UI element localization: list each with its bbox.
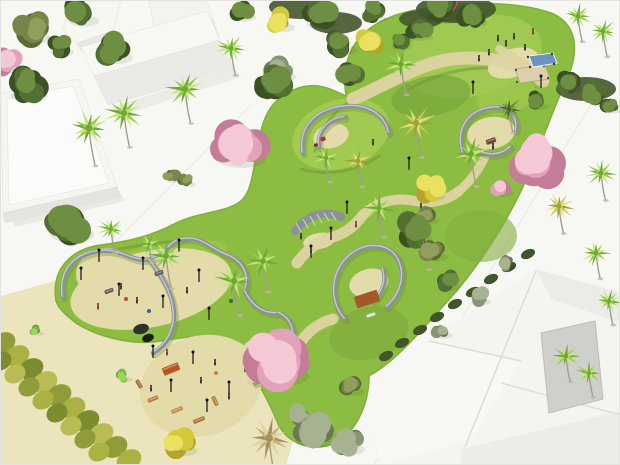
- lamp-base: [206, 410, 208, 412]
- lamp-base: [118, 294, 120, 296]
- palm-trunk-base: [233, 74, 239, 77]
- lamp-base: [310, 256, 312, 258]
- lamp-head: [208, 307, 211, 310]
- person-head: [355, 221, 357, 223]
- tree-foliage: [31, 329, 38, 336]
- person: [136, 299, 138, 304]
- palm-trunk-base: [427, 268, 433, 271]
- person-head: [150, 385, 152, 387]
- palm-crown-center: [147, 242, 151, 246]
- palm-trunk-base: [610, 324, 616, 327]
- tree-foliage: [162, 172, 170, 180]
- person-head: [505, 40, 507, 42]
- tree-foliage: [462, 4, 481, 23]
- palm-trunk-base: [169, 287, 175, 290]
- tree-foliage: [29, 18, 44, 33]
- person-head: [497, 35, 499, 37]
- palm-trunk-base: [403, 94, 409, 97]
- person-head: [166, 349, 168, 351]
- palm-crown-center: [587, 371, 591, 375]
- tree-foliage: [476, 286, 489, 299]
- palm-trunk-base: [598, 277, 604, 280]
- palm-trunk-base: [419, 156, 425, 159]
- palm-trunk-base: [237, 314, 243, 317]
- person: [532, 30, 534, 35]
- pergola-post: [529, 66, 531, 68]
- tree-foliage: [119, 374, 126, 381]
- palm-crown-center: [398, 61, 404, 67]
- palm-crown-center: [556, 203, 561, 208]
- person-head: [228, 393, 230, 395]
- palm-crown-center: [260, 258, 266, 264]
- palm-trunk-base: [510, 132, 516, 135]
- architectural-park-rendering: [0, 0, 620, 465]
- palm-crown-center: [507, 107, 511, 111]
- palm-trunk-base: [474, 185, 480, 188]
- palm-trunk-base: [188, 122, 194, 125]
- person: [300, 235, 302, 240]
- person: [505, 42, 507, 47]
- tree-foliage: [234, 4, 247, 17]
- lamp-base: [98, 260, 100, 262]
- tree-foliage: [57, 35, 71, 49]
- palm-crown-center: [182, 86, 188, 92]
- canopy-post: [547, 77, 549, 79]
- person: [478, 57, 480, 62]
- person: [492, 145, 494, 150]
- palm-trunk-base: [112, 252, 118, 255]
- palm-crown-center: [265, 434, 273, 442]
- palm-trunk-base: [127, 146, 133, 149]
- palm-trunk-base: [603, 199, 609, 202]
- lamp-base: [170, 390, 172, 392]
- palm-crown-center: [413, 120, 419, 126]
- tree-foliage: [528, 94, 542, 108]
- tree-foliage: [438, 326, 447, 335]
- play-equipment: [147, 309, 151, 313]
- lamp-base: [198, 280, 200, 282]
- person-head: [513, 33, 515, 35]
- person: [228, 395, 230, 400]
- person: [372, 141, 374, 146]
- person: [355, 223, 357, 228]
- tree-foliage: [230, 140, 249, 159]
- palm-crown-center: [228, 45, 233, 50]
- lamp-head: [152, 345, 155, 348]
- tree-foliage: [446, 273, 459, 286]
- person: [150, 387, 152, 392]
- pergola-post: [551, 53, 553, 55]
- lawn-berm: [445, 210, 517, 262]
- tree-foliage: [309, 4, 328, 23]
- palm-crown-center: [598, 170, 603, 175]
- lamp-base: [192, 362, 194, 364]
- person-head: [300, 233, 302, 235]
- lamp-base: [208, 318, 210, 320]
- tree-foliage: [344, 384, 353, 393]
- lamp-head: [408, 157, 411, 160]
- lamp-base: [330, 238, 332, 240]
- palm-trunk-base: [381, 236, 387, 239]
- lamp-head: [162, 295, 165, 298]
- palm-trunk-base: [327, 181, 333, 184]
- person: [524, 46, 526, 51]
- lamp-base: [540, 86, 542, 88]
- person-head: [186, 287, 188, 289]
- lamp-head: [178, 239, 181, 242]
- lamp-base: [162, 306, 164, 308]
- person: [488, 51, 490, 56]
- person: [97, 305, 99, 310]
- tree-foliage: [64, 217, 91, 244]
- person: [497, 37, 499, 42]
- lamp-head: [98, 249, 101, 252]
- tree-foliage: [306, 412, 331, 437]
- palm-crown-center: [468, 151, 474, 157]
- lamp-head: [206, 399, 209, 402]
- lamp-base: [472, 92, 474, 94]
- palm-crown-center: [163, 253, 169, 259]
- person-head: [97, 303, 99, 305]
- lamp-head: [170, 379, 173, 382]
- person-head: [420, 203, 422, 205]
- lamp-head: [198, 269, 201, 272]
- person-head: [492, 143, 494, 145]
- lamp-base: [408, 168, 410, 170]
- person: [310, 249, 312, 254]
- palm-crown-center: [121, 110, 127, 116]
- palm-crown-center: [564, 354, 569, 359]
- tree-foliage: [429, 175, 445, 191]
- tree-foliage: [1, 55, 12, 66]
- palm-trunk-base: [265, 291, 271, 294]
- tree-foliage: [185, 174, 193, 182]
- lamp-head: [192, 351, 195, 354]
- palm-trunk-base: [149, 262, 155, 265]
- tree-foliage: [582, 84, 596, 98]
- person-head: [524, 44, 526, 46]
- tree-foliage: [393, 34, 405, 46]
- person-head: [372, 139, 374, 141]
- person-head: [136, 297, 138, 299]
- lamp-head: [142, 257, 145, 260]
- lamp-base: [80, 278, 82, 280]
- palm-trunk-base: [568, 380, 574, 383]
- tree-foliage: [418, 22, 434, 38]
- palm-crown-center: [85, 124, 92, 131]
- play-equipment: [214, 371, 218, 375]
- palm-crown-center: [594, 251, 599, 256]
- person-head: [120, 283, 122, 285]
- tree-foliage: [16, 74, 35, 93]
- lamp-base: [152, 356, 154, 358]
- palm-trunk-base: [93, 164, 99, 167]
- person-head: [200, 377, 202, 379]
- tree-foliage: [100, 44, 120, 64]
- lamp-base: [142, 268, 144, 270]
- palm-crown-center: [376, 205, 381, 210]
- canopy-post: [516, 81, 518, 83]
- palm-trunk-base: [360, 185, 366, 188]
- tree-foliage: [334, 35, 347, 48]
- tree-foliage: [344, 64, 361, 81]
- tree-foliage: [248, 333, 277, 362]
- person: [513, 35, 515, 40]
- palm-crown-center: [601, 29, 606, 34]
- lamp-head: [472, 81, 475, 84]
- palm-crown-center: [356, 159, 361, 164]
- person: [120, 285, 122, 290]
- palm-trunk-base: [561, 232, 567, 235]
- tree-foliage: [499, 258, 510, 269]
- canopy-post: [515, 69, 517, 71]
- person: [214, 361, 216, 366]
- lamp-base: [346, 212, 348, 214]
- tree-foliage: [163, 435, 176, 448]
- play-equipment: [124, 297, 128, 301]
- inner-courtyard: [541, 321, 603, 413]
- tree-foliage: [268, 14, 286, 32]
- person-head: [478, 55, 480, 57]
- person: [186, 289, 188, 294]
- tree-foliage: [268, 66, 291, 89]
- palm-crown-center: [231, 278, 237, 284]
- pergola-post: [527, 56, 529, 58]
- palm-trunk-base: [605, 55, 611, 58]
- person-head: [488, 49, 490, 51]
- lamp-head: [540, 75, 543, 78]
- tree-foliage: [603, 101, 614, 112]
- lamp-head: [80, 267, 83, 270]
- person: [200, 379, 202, 384]
- tree-foliage: [429, 247, 439, 257]
- tree-foliage: [69, 1, 82, 14]
- play-equipment: [229, 299, 233, 303]
- person: [166, 351, 168, 356]
- palm-crown-center: [324, 156, 328, 160]
- palm-trunk-base: [580, 40, 586, 43]
- scene-canvas: [1, 1, 620, 465]
- tree-foliage: [405, 220, 426, 241]
- person-head: [310, 247, 312, 249]
- tree-foliage: [494, 181, 501, 188]
- lamp-head: [228, 381, 231, 384]
- tree-foliage: [359, 35, 375, 51]
- palm-crown-center: [607, 299, 611, 303]
- palm-crown-center: [576, 14, 581, 19]
- palm-trunk-base: [590, 396, 596, 399]
- person-head: [532, 28, 534, 30]
- lamp-head: [346, 201, 349, 204]
- pergola-post: [553, 63, 555, 65]
- palm-crown-center: [109, 227, 113, 231]
- person-head: [214, 359, 216, 361]
- lamp-head: [330, 227, 333, 230]
- tree-foliage: [335, 428, 356, 449]
- tree-foliage: [561, 75, 576, 90]
- tree-foliage: [520, 137, 552, 169]
